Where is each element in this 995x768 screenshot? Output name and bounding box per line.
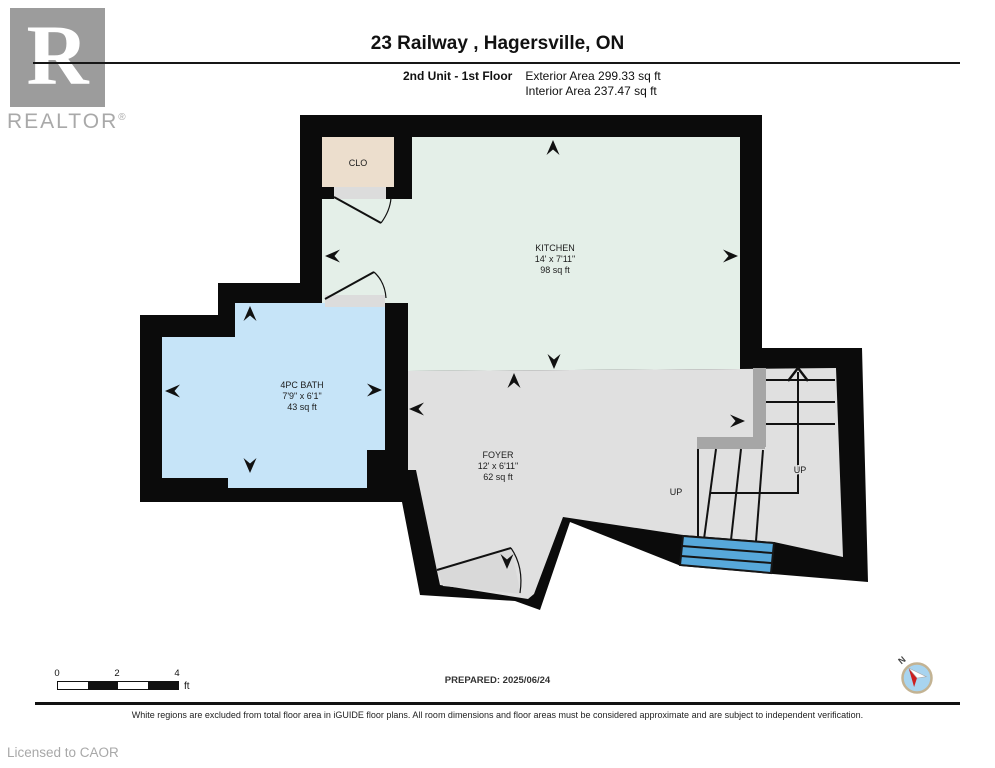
closet-label: CLO [349, 158, 368, 168]
bath-label: 4PC BATH [280, 380, 323, 390]
closet-right-wall [394, 137, 412, 199]
prepared-date: PREPARED: 2025/06/24 [0, 675, 995, 686]
foyer-area: 62 sq ft [483, 472, 513, 482]
entry-up-label: UP [670, 487, 683, 497]
floorplan-page: R REALTOR® 23 Railway , Hagersville, ON … [0, 0, 995, 768]
kitchen-label: KITCHEN [535, 243, 575, 253]
stair-half-wall-vertical [753, 368, 766, 447]
compass-icon: N [890, 650, 942, 702]
compass-north-label: N [896, 654, 907, 666]
bath-door-threshold [325, 295, 385, 307]
footer-divider [35, 702, 960, 705]
bath-area: 43 sq ft [287, 402, 317, 412]
closet-right-nub [386, 187, 394, 199]
bath-dims: 7'9" x 6'1" [282, 391, 321, 401]
kitchen-dims: 14' x 7'11" [535, 254, 576, 264]
stair-half-wall-horizontal [697, 437, 765, 449]
stair-up-label: UP [794, 465, 807, 475]
closet-left-nub [322, 187, 334, 199]
license-text: Licensed to CAOR [7, 745, 119, 760]
foyer-dims: 12' x 6'11" [478, 461, 519, 471]
floorplan-drawing: KITCHEN 14' x 7'11" 98 sq ft 4PC BATH 7'… [0, 0, 995, 768]
exterior-steps [680, 536, 774, 573]
closet-door-threshold [334, 187, 386, 199]
foyer-label: FOYER [482, 450, 514, 460]
kitchen-area: 98 sq ft [540, 265, 570, 275]
disclaimer-text: White regions are excluded from total fl… [0, 710, 995, 720]
